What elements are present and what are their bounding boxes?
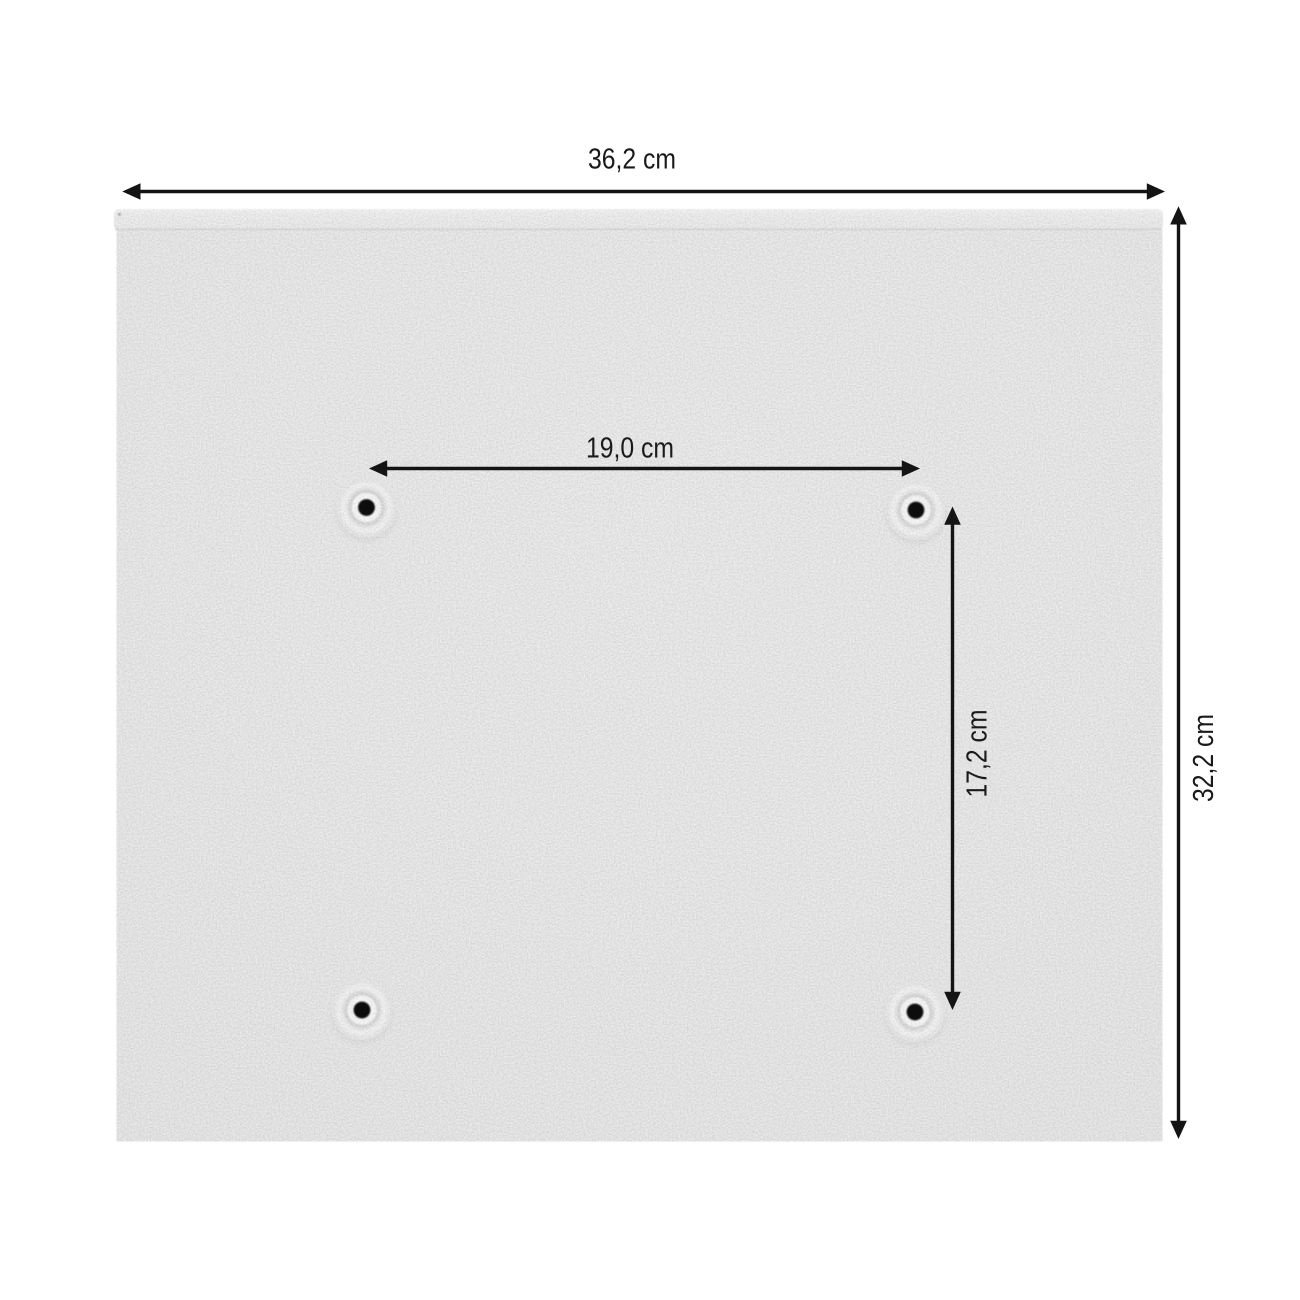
svg-text:19,0 cm: 19,0 cm <box>586 433 674 465</box>
svg-text:36,2 cm: 36,2 cm <box>588 143 676 175</box>
svg-text:17,2 cm: 17,2 cm <box>962 710 994 798</box>
svg-text:32,2 cm: 32,2 cm <box>1188 714 1220 802</box>
